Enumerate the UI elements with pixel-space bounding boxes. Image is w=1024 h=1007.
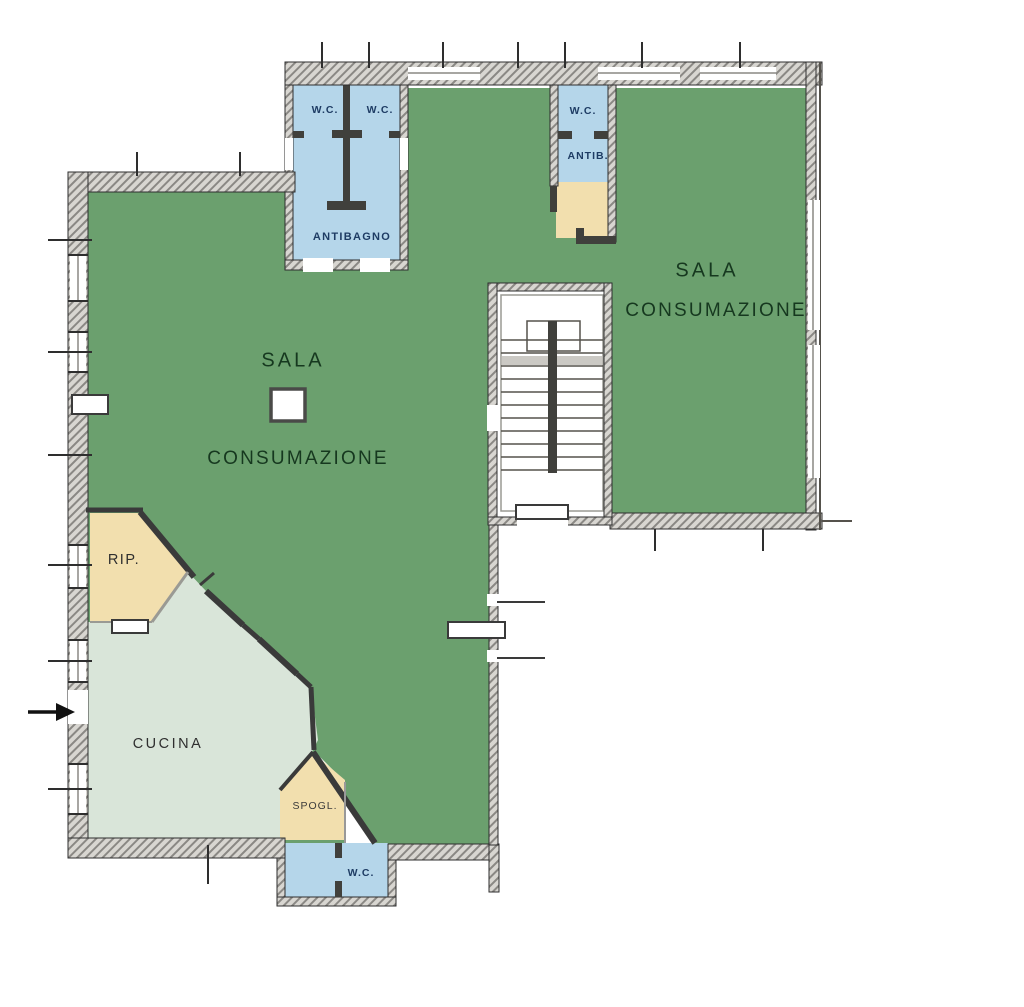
wall-bottom-mid <box>388 844 498 860</box>
wc-divider-stub <box>335 881 342 897</box>
sala-east-door <box>448 622 505 638</box>
door-gap <box>303 258 333 272</box>
entrance-gap <box>68 690 88 724</box>
door-jamb <box>558 131 572 139</box>
stairwell <box>488 283 612 525</box>
rip-door <box>112 620 148 633</box>
label-cucina: CUCINA <box>133 736 204 752</box>
window <box>408 67 480 80</box>
door-jamb <box>293 131 304 138</box>
door-gap <box>285 138 293 170</box>
wall <box>277 897 396 906</box>
wall-dark <box>550 186 557 212</box>
door-gap <box>400 138 408 170</box>
label-antib: ANTIB. <box>568 150 609 162</box>
diagonal-wall <box>311 687 314 750</box>
stairwell-wall-top <box>488 283 612 291</box>
wc-divider-foot <box>327 201 366 210</box>
stairwell-wall-right <box>604 283 612 525</box>
floor-plan-drawing <box>0 0 1024 1007</box>
wall-niche <box>72 395 108 414</box>
label-wc-top-center: W.C. <box>367 104 394 116</box>
room-areas <box>88 88 808 845</box>
wall-top-left <box>68 172 295 192</box>
floor-plan: W.C. W.C. ANTIBAGNO W.C. ANTIB. SALA CON… <box>0 0 1024 1007</box>
label-sala-left-2: CONSUMAZIONE <box>207 448 389 470</box>
wc-divider-stub <box>335 843 342 858</box>
label-sala-left-1: SALA <box>261 350 324 373</box>
door-jamb <box>594 131 608 139</box>
window <box>808 345 820 478</box>
label-sala-right-2: CONSUMAZIONE <box>625 300 807 322</box>
label-wc-bottom: W.C. <box>348 867 375 879</box>
column <box>271 389 305 421</box>
wall-bottom-left <box>68 838 285 858</box>
label-wc-top-left: W.C. <box>312 104 339 116</box>
label-antibagno: ANTIBAGNO <box>313 231 391 243</box>
wc-divider-cross <box>332 130 362 138</box>
window <box>700 67 776 80</box>
wall <box>550 78 558 186</box>
wc-block-bottom <box>277 840 396 906</box>
wall <box>608 78 616 242</box>
window <box>598 67 680 80</box>
label-sala-right-1: SALA <box>675 260 738 283</box>
stair-entry-step <box>516 505 568 519</box>
stair-center-rail <box>548 321 557 473</box>
door-gap <box>487 594 500 606</box>
wall-bottom-return <box>489 844 499 892</box>
window <box>68 255 88 301</box>
wall-dark <box>576 236 616 244</box>
door-jamb <box>389 131 400 138</box>
label-rip: RIP. <box>108 552 140 568</box>
stairwell-wall-left <box>488 283 497 525</box>
label-wc-top-right: W.C. <box>570 105 597 117</box>
wall-bottom-right-room <box>610 513 822 529</box>
wall-sala-east <box>489 525 498 845</box>
label-spogl: SPOGL. <box>292 800 337 812</box>
window <box>808 200 820 330</box>
window <box>68 545 88 588</box>
door-gap <box>360 258 390 272</box>
door-gap <box>487 405 498 431</box>
wc-divider-wall <box>343 85 350 205</box>
door-gap <box>487 650 500 662</box>
